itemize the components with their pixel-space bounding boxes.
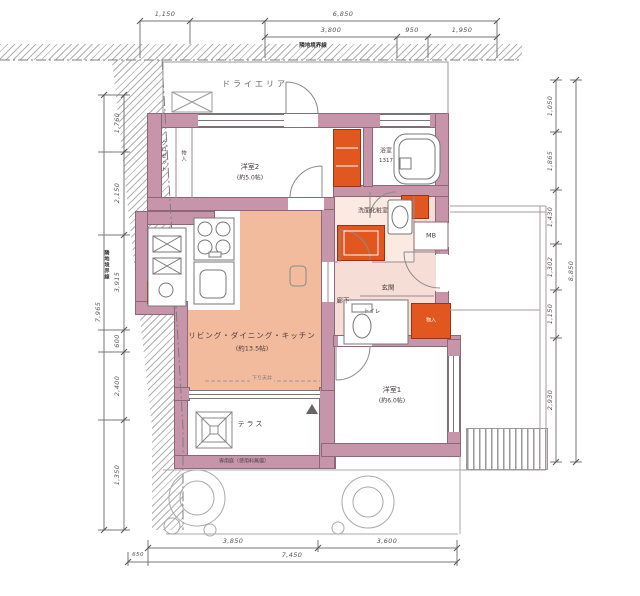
dim-left-total: 7,965	[94, 302, 102, 323]
label-dry-area: ドライエリア	[222, 81, 288, 90]
label-bathroom-size: 1317	[379, 158, 393, 164]
dim-top-1950: 1,950	[452, 26, 473, 34]
dim-right-6: 2,930	[546, 390, 554, 411]
linework	[0, 0, 640, 596]
dim-left-3: 3,915	[113, 272, 121, 293]
dim-top-3800: 3,800	[321, 26, 342, 34]
label-closet: クロゼット	[159, 140, 167, 173]
garden	[163, 470, 462, 536]
label-closet-strip: 物入	[181, 150, 188, 162]
dim-left-4: 600	[113, 334, 121, 348]
label-terrace: テラス	[238, 421, 265, 429]
label-meter-box: MB	[426, 232, 436, 239]
dim-bottom-650: 650	[132, 552, 144, 558]
label-ldk-size: (約13.5帖)	[236, 345, 269, 352]
dim-top-1150: 1,150	[155, 10, 176, 18]
dim-left-6: 1,350	[113, 465, 121, 486]
outside-structure	[450, 206, 546, 470]
label-toilet: トイレ	[364, 309, 381, 315]
orange-detail-lines	[336, 148, 378, 255]
note-ceiling: 下り天井	[250, 376, 274, 382]
dim-bottom-3600: 3,600	[377, 537, 398, 545]
label-bedroom2: 洋室2	[241, 164, 259, 172]
dim-bottom-7450: 7,450	[282, 551, 303, 559]
label-bedroom1: 洋室1	[383, 387, 401, 395]
dim-left-2: 2,150	[113, 183, 121, 204]
bathtub	[394, 134, 440, 184]
note-boundary-top: 隣地境界線	[299, 43, 327, 49]
label-washroom: 洗面化粧室	[358, 209, 388, 216]
label-entrance: 玄関	[382, 284, 395, 291]
dim-right-3: 1,430	[546, 207, 554, 228]
label-hallway: 廊下	[337, 297, 350, 304]
dim-right-4: 1,302	[546, 257, 554, 278]
vanity-sink	[388, 200, 412, 234]
dim-right-5: 1,150	[546, 304, 554, 325]
note-terrace: 専用庭（使用料無償）	[219, 459, 269, 465]
dim-right-total: 8,850	[567, 261, 575, 282]
dim-right-1: 1,050	[546, 96, 554, 117]
dim-right-2: 1,865	[546, 151, 554, 172]
kitchen-fixtures	[148, 218, 234, 306]
dim-top-950: 950	[405, 26, 419, 34]
dim-left-5: 2,400	[113, 376, 121, 397]
dim-top-6850: 6,850	[333, 10, 354, 18]
floor-plan: ドライエリア 洋室2 (約5.0帖) クロゼット 物入 浴室 1317 洗面化粧…	[0, 0, 640, 596]
label-bathroom: 浴室	[380, 149, 392, 156]
toilet-fixture	[344, 300, 408, 344]
label-storage-entry: 物入	[426, 318, 436, 324]
dim-bottom-3850: 3,850	[223, 537, 244, 545]
terrace-marker-triangle	[306, 404, 318, 414]
label-bedroom1-size: (約6.0帖)	[379, 399, 405, 406]
dim-left-1: 1,760	[113, 113, 121, 134]
label-ldk: リビング・ダイニング・キッチン	[188, 332, 316, 340]
label-bedroom2-size: (約5.0帖)	[237, 176, 263, 183]
note-boundary-left: 隣地境界線	[104, 250, 111, 280]
